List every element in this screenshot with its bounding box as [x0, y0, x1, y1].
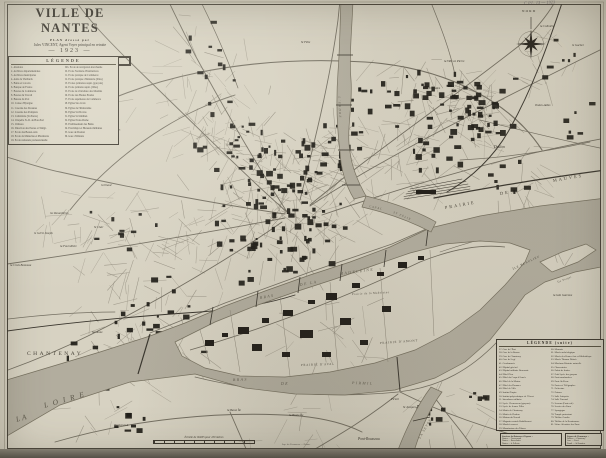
legend-suite-col-1: 37. Gare de l'État38. Gare de la Bourse3… — [499, 348, 549, 431]
map-subtitle: PLAN dressé par — [10, 38, 130, 42]
tramway-line: Pirmil — St Donatien — [567, 443, 600, 446]
legend-item: 81. Usine élévatoire des Eaux — [551, 423, 601, 427]
legend-suite-heading: LÉGENDE (suite) — [499, 341, 601, 347]
legend-col-1: 1. Abattoirs2. Archives départementales3… — [11, 66, 63, 144]
map-title: VILLE DE NANTES — [10, 6, 130, 36]
legend-item: 36. Gare d'Orléans — [65, 135, 117, 139]
tramway-lines: Doulon — ChantenayGare — ProcéPirmil — S… — [567, 438, 600, 446]
steamboat-line: Nantes — le Pellerin — [502, 443, 560, 446]
scale-ruler — [153, 440, 255, 444]
legend-heading: LÉGENDE — [11, 58, 116, 65]
scale-bar: Échelle de 0m005 pour 100 mètres — [148, 436, 260, 444]
compass-rose — [516, 17, 546, 59]
legend-col-2: 19b. École de navigation marchande20. Éc… — [65, 66, 117, 144]
steamboat-lines: Nantes — TrentemoultNantes — Basse-Indre… — [502, 438, 560, 446]
legend-item: 59. Manufacture des Tabacs — [499, 427, 549, 431]
map-author: Jules VINCENT, Agent Voyer principal en … — [10, 43, 130, 47]
legend-suite-col-2: 60. Monnaie61. Musée archéologique62. Mu… — [551, 348, 601, 431]
page-edge-shadow — [0, 449, 606, 458]
tramway-lines-box: Lignes de Tramways : Doulon — ChantenayG… — [565, 433, 602, 446]
printer-imprint: Imp. du Commerce — Nantes — [282, 443, 310, 446]
scale-caption: Échelle de 0m005 pour 100 mètres — [148, 436, 260, 439]
legend-box: LÉGENDE 1. Abattoirs2. Archives départem… — [8, 56, 119, 145]
legend-item: 19. École nationale professionnelle — [11, 139, 63, 143]
map-year: — 1923 — — [10, 48, 130, 54]
north-label: NORD — [522, 9, 536, 13]
canal-st-felix — [362, 196, 436, 232]
map-sheet: LALOIREBRASDE LAMADELEINEBRASDEPIRMILLA … — [0, 0, 606, 458]
legend-suite-box: LÉGENDE (suite) 37. Gare de l'État38. Ga… — [496, 339, 604, 431]
steamboat-services-box: Services de Bateaux à Vapeur : Nantes — … — [500, 433, 562, 446]
